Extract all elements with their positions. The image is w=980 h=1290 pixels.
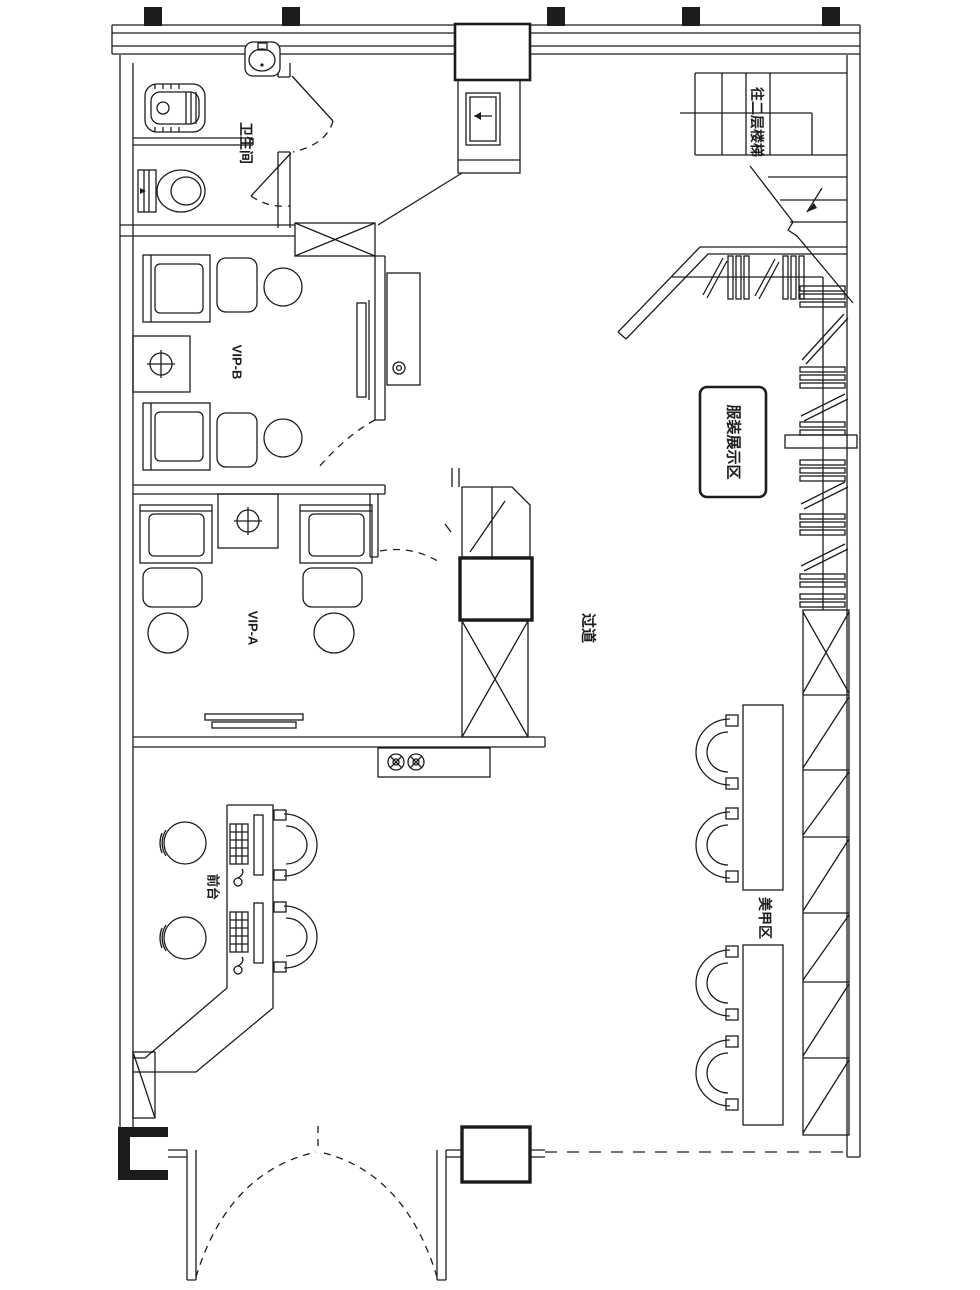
plant-icon [408, 754, 424, 770]
nail-chair [696, 1036, 738, 1110]
side-table [148, 613, 188, 653]
vip-b-label: VIP-B [230, 345, 245, 380]
stairs-label: 往二层楼梯 [749, 87, 765, 157]
wall-shelving [803, 610, 849, 1135]
bathroom-zone: 卫生间 [120, 42, 333, 236]
keyboard [230, 912, 248, 952]
guest-chair [274, 902, 317, 972]
column-tick [144, 7, 162, 26]
ottoman [143, 568, 202, 607]
vip-b-east-wall [375, 256, 385, 420]
nail-table [743, 705, 783, 890]
bathtub [145, 84, 205, 132]
bathroom-partition [133, 138, 253, 145]
nail-chair [696, 946, 738, 1020]
column-tick [822, 7, 840, 26]
armchair [143, 255, 210, 322]
nail-chair [696, 715, 738, 789]
entrance-jamb-right [437, 1150, 446, 1280]
entrance-doors [196, 1126, 437, 1277]
vip-b-room: VIP-B [133, 255, 420, 494]
nail-table [743, 945, 783, 1125]
entrance-jamb-left [187, 1150, 196, 1280]
ottoman [217, 413, 257, 467]
vip-b-door-swing [318, 420, 375, 468]
entrance-column [462, 1127, 530, 1182]
column-tick [282, 7, 300, 26]
wall-left [120, 55, 133, 1127]
shaft-column [452, 468, 532, 737]
mouse [234, 869, 243, 886]
structural-column [460, 558, 532, 620]
closet-x [295, 223, 375, 256]
column-tick [682, 7, 700, 26]
bathroom-south-wall [120, 225, 295, 236]
keyboard [230, 824, 248, 864]
nail-area-label: 美甲区 [757, 897, 773, 939]
tv-panel [357, 300, 369, 400]
window-band [112, 7, 860, 80]
stool [160, 822, 206, 864]
side-table [264, 419, 302, 457]
entrance [118, 1052, 845, 1280]
nail-area: 美甲区 [696, 610, 849, 1135]
shaft-x-box [462, 621, 528, 737]
lamp-table [133, 336, 190, 392]
rail-shelf [785, 435, 857, 448]
vip-a-door-swing [380, 550, 441, 564]
column-tick [547, 7, 565, 26]
arrow-icon [474, 112, 481, 120]
monitor [254, 815, 263, 875]
floor-plan-page: 卫生间 [0, 0, 980, 1290]
vip-a-label: VIP-A [246, 611, 261, 646]
side-table [314, 613, 354, 653]
signboard [133, 1052, 155, 1118]
tv-panel [205, 714, 303, 728]
nail-chair [696, 808, 738, 882]
wall-block [118, 1170, 168, 1180]
corridor-cabinet [387, 273, 420, 385]
stair-treads [768, 177, 847, 222]
lamp-table [218, 494, 278, 548]
hanger-bar [785, 286, 857, 607]
stool [160, 917, 206, 959]
guest-chair [274, 810, 317, 880]
bathroom-door [251, 76, 333, 206]
mouse [234, 957, 243, 974]
armchair [300, 505, 372, 563]
armchair [140, 505, 212, 563]
vip-a-south-wall [133, 737, 545, 747]
vip-b-south-wall [133, 485, 385, 494]
front-desk: 前台 [133, 805, 317, 1072]
display-sign: 服装展示区 [700, 387, 766, 497]
bathroom-label: 卫生间 [238, 122, 254, 164]
floor-plan-canvas: 卫生间 [0, 0, 980, 1290]
monitor [254, 903, 263, 963]
top-center-column [455, 24, 530, 80]
angled-wall [378, 173, 462, 225]
console-table [378, 748, 490, 777]
vip-a-east-wall [370, 494, 378, 557]
side-table [264, 268, 302, 306]
stairs-break-line [750, 166, 853, 303]
stairs: 往二层楼梯 [680, 73, 853, 303]
ottoman [303, 568, 362, 607]
toilet [138, 170, 205, 212]
plant-icon [388, 754, 404, 770]
bathroom-wall [278, 63, 290, 228]
wash-basin [245, 42, 280, 76]
shaft-cabinet [462, 487, 530, 557]
armchair [143, 403, 210, 470]
corridor-label: 过道 [580, 613, 598, 643]
display-area-label: 服装展示区 [725, 404, 743, 479]
ottoman [217, 258, 257, 312]
entry-mirror-unit [378, 80, 520, 225]
front-desk-label: 前台 [206, 874, 221, 900]
